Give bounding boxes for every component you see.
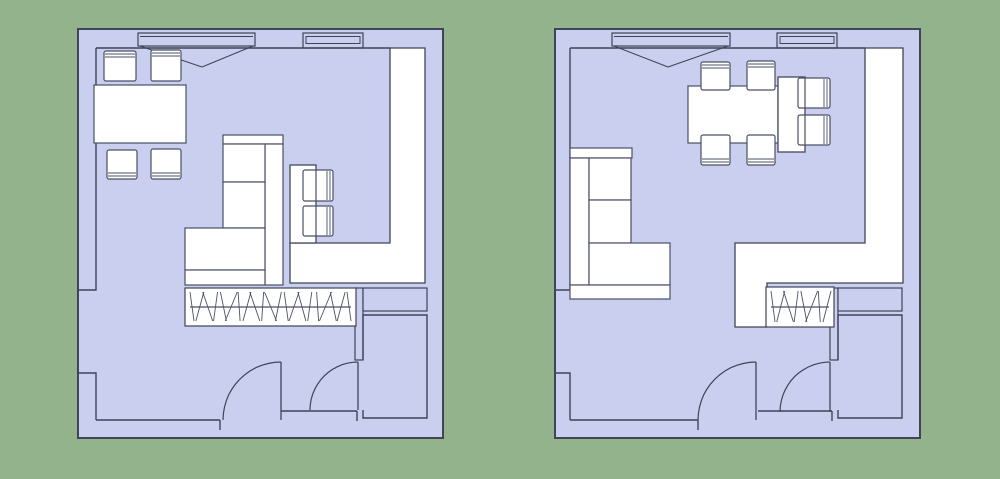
- sofa-back: [265, 144, 283, 285]
- floor-plan-canvas: [0, 0, 1000, 479]
- sofa-cushion: [589, 200, 631, 243]
- sofa-cushion: [223, 182, 265, 228]
- sofa-cushion: [589, 158, 631, 200]
- floor-plan-option-1: [78, 29, 443, 438]
- sofa-armrest: [570, 285, 670, 299]
- dining-chair: [701, 62, 730, 90]
- radiator: [185, 288, 356, 326]
- floor-plan-viewport: [0, 0, 1000, 479]
- desk-chair: [303, 206, 333, 236]
- desk-chair: [798, 78, 830, 108]
- dining-chair: [747, 61, 775, 90]
- dining-chair: [747, 135, 775, 165]
- dining-table: [94, 85, 186, 143]
- wall-niche: [838, 288, 902, 311]
- dining-chair: [151, 149, 181, 179]
- floor-plan-option-2: [555, 29, 920, 438]
- sofa-cushion: [223, 144, 265, 182]
- sofa-armrest: [570, 148, 632, 158]
- dining-chair: [701, 135, 730, 165]
- dining-chair: [104, 51, 136, 81]
- radiator: [766, 287, 834, 327]
- sofa-armrest: [223, 135, 283, 144]
- sofa-chaise: [185, 228, 265, 270]
- dining-chair: [107, 150, 137, 179]
- desk-chair: [303, 170, 333, 201]
- dining-chair: [151, 50, 181, 81]
- wall-niche: [363, 288, 427, 311]
- sofa-chaise: [589, 243, 670, 285]
- sofa-armrest: [185, 270, 265, 285]
- desk-chair: [798, 115, 830, 145]
- sofa-back: [570, 158, 589, 285]
